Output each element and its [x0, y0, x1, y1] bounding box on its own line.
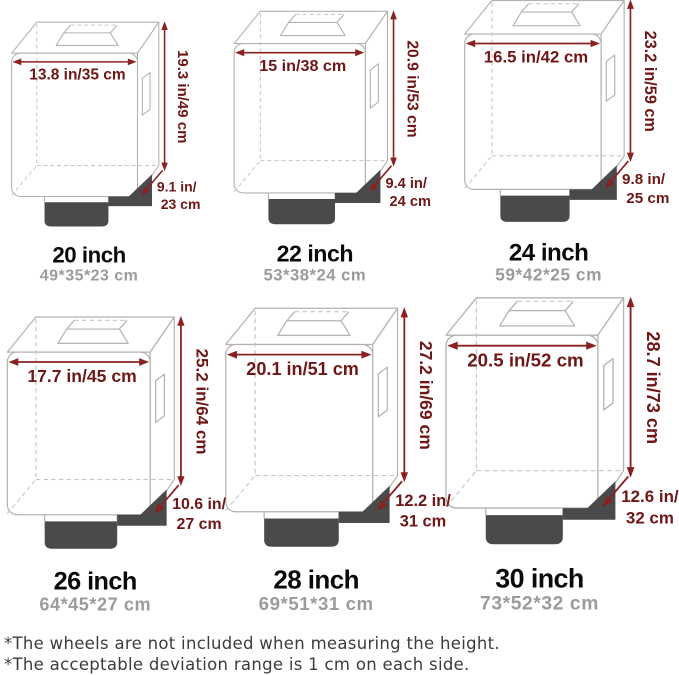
luggage-cover-diagram: 16.5 in/42 cm 23.2 in/59 cm 9.8 in/ 25 c… [452, 0, 679, 288]
side-handle-slot [156, 374, 165, 422]
size-tile-24-inch: 16.5 in/42 cm 23.2 in/59 cm 9.8 in/ 25 c… [452, 0, 679, 288]
depth-dimension-label-line1: 9.1 in/ [157, 179, 197, 195]
arrowhead-up-icon [401, 307, 408, 317]
bottom-step-lines [45, 196, 109, 202]
width-dimension-label: 20.1 in/51 cm [246, 359, 359, 379]
size-subtitle-cm: 53*38*24 cm [263, 266, 366, 285]
side-handle-slot [606, 55, 614, 101]
size-title: 28 inch [273, 565, 359, 595]
size-subtitle-cm: 69*51*31 cm [259, 593, 374, 614]
footnotes: *The wheels are not included when measur… [4, 633, 500, 675]
depth-dimension-label-line2: 32 cm [626, 508, 674, 527]
bottom-step-lines [500, 189, 569, 195]
size-tile-22-inch: 15 in/38 cm 20.9 in/53 cm 9.4 in/ 24 cm … [222, 1, 444, 288]
luggage-cover-diagram: 15 in/38 cm 20.9 in/53 cm 9.4 in/ 24 cm … [222, 1, 444, 288]
size-title: 22 inch [277, 241, 353, 267]
luggage-wireframe [465, 0, 624, 195]
width-dimension-label: 15 in/38 cm [259, 57, 346, 75]
bottom-step-lines [268, 193, 335, 199]
depth-dimension-label-line2: 23 cm [161, 196, 201, 212]
top-handle-cutout [281, 22, 346, 35]
luggage-cover-diagram: 13.8 in/35 cm 19.3 in/49 cm 9.1 in/ 23 c… [0, 12, 213, 288]
luggage-cover-diagram: 20.1 in/51 cm 27.2 in/69 cm 12.2 in/ 31 … [212, 297, 461, 618]
size-tile-28-inch: 20.1 in/51 cm 27.2 in/69 cm 12.2 in/ 31 … [212, 297, 461, 618]
luggage-wireframe [446, 298, 624, 515]
luggage-cover-diagram: 20.5 in/52 cm 28.7 in/73 cm 12.6 in/ 32 … [432, 286, 679, 618]
footnote-deviation: *The acceptable deviation range is 1 cm … [4, 654, 500, 675]
size-tile-30-inch: 20.5 in/52 cm 28.7 in/73 cm 12.6 in/ 32 … [432, 286, 679, 618]
arrowhead-down-icon [627, 467, 635, 478]
depth-dimension-label-line2: 27 cm [177, 516, 222, 533]
height-dimension-label: 28.7 in/73 cm [643, 331, 663, 444]
bottom-step-lines [45, 515, 118, 522]
base-bottom [45, 202, 109, 226]
luggage-wireframe [7, 317, 174, 521]
size-subtitle-cm: 59*42*25 cm [495, 265, 602, 285]
depth-dimension-label-line1: 12.2 in/ [395, 492, 451, 510]
width-dimension-label: 16.5 in/42 cm [484, 47, 588, 66]
luggage-cover-diagram: 17.7 in/45 cm 25.2 in/64 cm 10.6 in/ 27 … [0, 306, 236, 618]
bottom-step-lines [264, 512, 339, 519]
height-dimension-label: 25.2 in/64 cm [192, 349, 211, 455]
width-dimension-label: 17.7 in/45 cm [27, 366, 136, 386]
size-title: 24 inch [509, 240, 588, 267]
base-bottom [45, 521, 118, 548]
arrowhead-up-icon [161, 21, 167, 30]
height-dimension-label: 20.9 in/53 cm [404, 40, 421, 137]
side-handle-slot [370, 64, 378, 108]
size-title: 26 inch [54, 567, 137, 595]
top-handle-cutout [278, 321, 350, 336]
base-bottom [500, 196, 569, 222]
size-title: 20 inch [52, 242, 125, 267]
side-handle-slot [604, 359, 613, 410]
arrowhead-up-icon [627, 297, 635, 308]
luggage-wireframe [226, 308, 398, 518]
size-subtitle-cm: 64*45*27 cm [39, 594, 151, 614]
top-handle-cutout [513, 12, 580, 26]
arrowhead-down-icon [177, 476, 184, 486]
arrowhead-down-icon [161, 163, 167, 172]
size-title: 30 inch [495, 564, 583, 594]
size-tile-20-inch: 13.8 in/35 cm 19.3 in/49 cm 9.1 in/ 23 c… [0, 12, 213, 288]
size-subtitle-cm: 49*35*23 cm [40, 268, 139, 285]
depth-dimension-label-line1: 12.6 in/ [621, 487, 679, 506]
depth-dimension-label-line2: 24 cm [390, 194, 431, 210]
depth-dimension-label-line1: 9.8 in/ [622, 171, 666, 188]
top-handle-cutout [500, 311, 575, 326]
side-handle-slot [378, 367, 387, 417]
arrowhead-down-icon [390, 158, 397, 167]
top-handle-cutout [58, 329, 128, 343]
side-handle-slot [142, 73, 150, 116]
depth-dimension-label-line1: 10.6 in/ [172, 496, 227, 513]
top-handle-cutout [56, 33, 118, 46]
depth-dimension-label-line2: 25 cm [626, 190, 669, 207]
depth-dimension-label-line1: 9.4 in/ [385, 176, 426, 192]
base-bottom [486, 515, 563, 544]
bottom-step-lines [486, 508, 563, 515]
depth-dimension-label-line2: 31 cm [400, 512, 446, 530]
size-tile-26-inch: 17.7 in/45 cm 25.2 in/64 cm 10.6 in/ 27 … [0, 306, 236, 618]
base-bottom [268, 199, 335, 224]
size-subtitle-cm: 73*52*32 cm [480, 594, 599, 615]
height-dimension-label: 19.3 in/49 cm [174, 50, 191, 143]
width-dimension-label: 20.5 in/52 cm [467, 350, 583, 371]
height-dimension-label: 23.2 in/59 cm [641, 31, 659, 132]
arrowhead-down-icon [627, 153, 634, 162]
arrowhead-down-icon [401, 472, 408, 482]
width-dimension-label: 13.8 in/35 cm [29, 66, 125, 83]
arrowhead-up-icon [627, 0, 634, 9]
arrowhead-up-icon [390, 10, 397, 19]
height-dimension-label: 27.2 in/69 cm [416, 341, 436, 450]
luggage-wireframe [234, 11, 387, 199]
footnote-wheels: *The wheels are not included when measur… [4, 633, 500, 654]
arrowhead-up-icon [177, 316, 184, 326]
luggage-wireframe [12, 22, 159, 202]
base-bottom [264, 519, 339, 547]
